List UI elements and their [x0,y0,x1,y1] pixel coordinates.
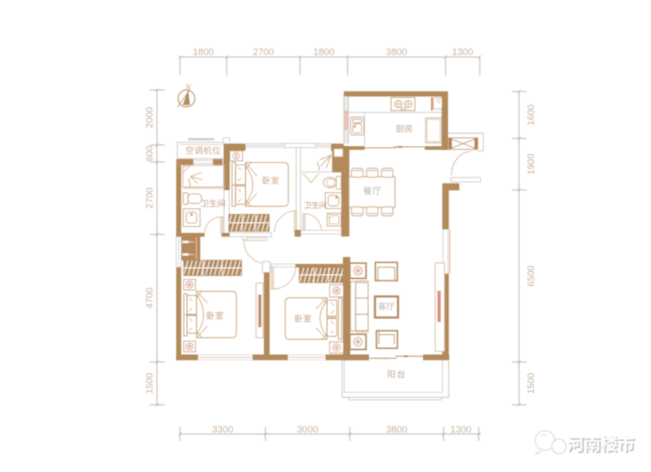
svg-text:2000: 2000 [145,107,156,128]
svg-text:4700: 4700 [145,287,156,308]
svg-text:2700: 2700 [253,47,274,58]
svg-text:1300: 1300 [450,425,471,436]
svg-text:N: N [185,83,192,92]
svg-text:1500: 1500 [526,373,537,394]
svg-text:2700: 2700 [145,187,156,208]
svg-text:1800: 1800 [193,47,214,58]
svg-text:3800: 3800 [386,47,407,58]
svg-text:3000: 3000 [297,425,318,436]
svg-text:3800: 3800 [386,425,407,436]
svg-text:6500: 6500 [526,265,537,286]
svg-text:1500: 1500 [145,373,156,394]
svg-text:600: 600 [145,146,156,162]
svg-text:1900: 1900 [526,154,537,175]
svg-text:1600: 1600 [526,104,537,125]
svg-text:1300: 1300 [452,47,473,58]
svg-text:3300: 3300 [212,425,233,436]
svg-text:1800: 1800 [313,47,334,58]
